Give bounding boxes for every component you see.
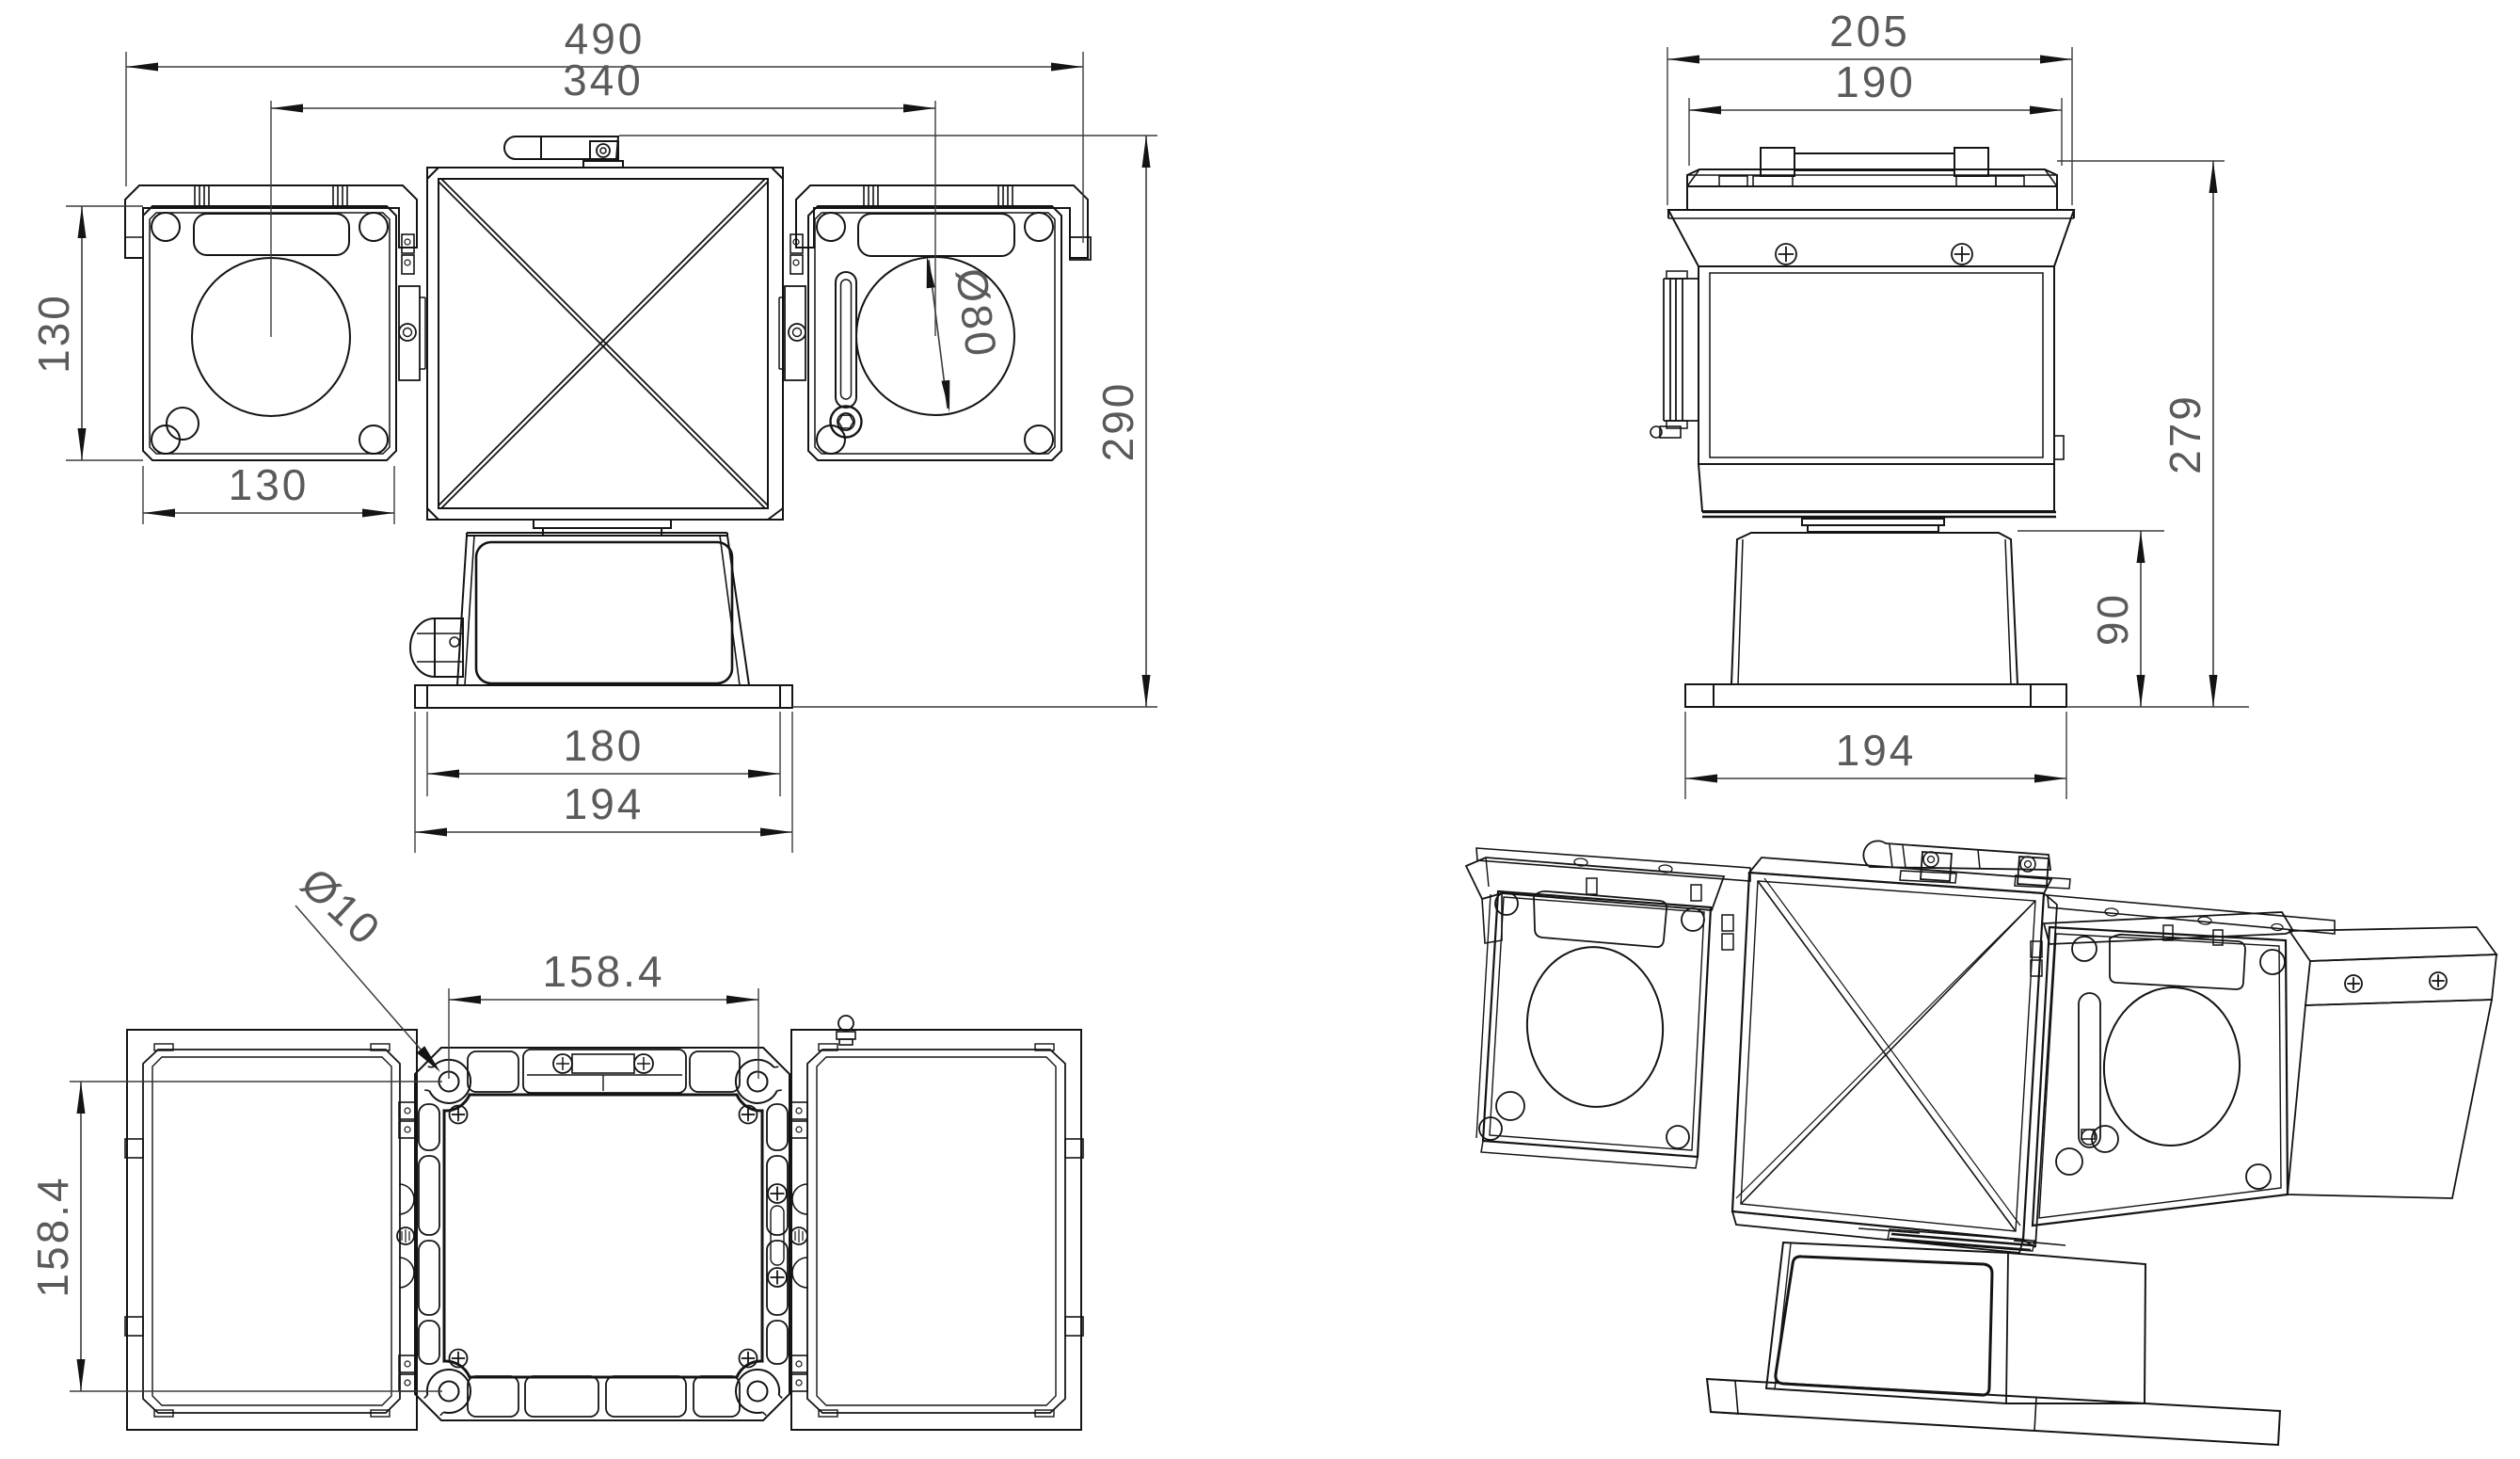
svg-text:290: 290 — [1093, 381, 1142, 462]
svg-text:158.4: 158.4 — [28, 1175, 77, 1297]
svg-text:190: 190 — [1835, 57, 1916, 106]
svg-text:340: 340 — [563, 56, 644, 104]
svg-text:279: 279 — [2161, 393, 2209, 474]
svg-text:90: 90 — [2088, 592, 2137, 646]
svg-text:194: 194 — [1836, 726, 1917, 775]
svg-text:194: 194 — [564, 779, 645, 828]
svg-text:158.4: 158.4 — [542, 947, 664, 996]
svg-text:130: 130 — [229, 460, 310, 509]
svg-text:130: 130 — [29, 293, 78, 374]
svg-text:205: 205 — [1829, 7, 1910, 56]
svg-text:180: 180 — [564, 721, 645, 770]
